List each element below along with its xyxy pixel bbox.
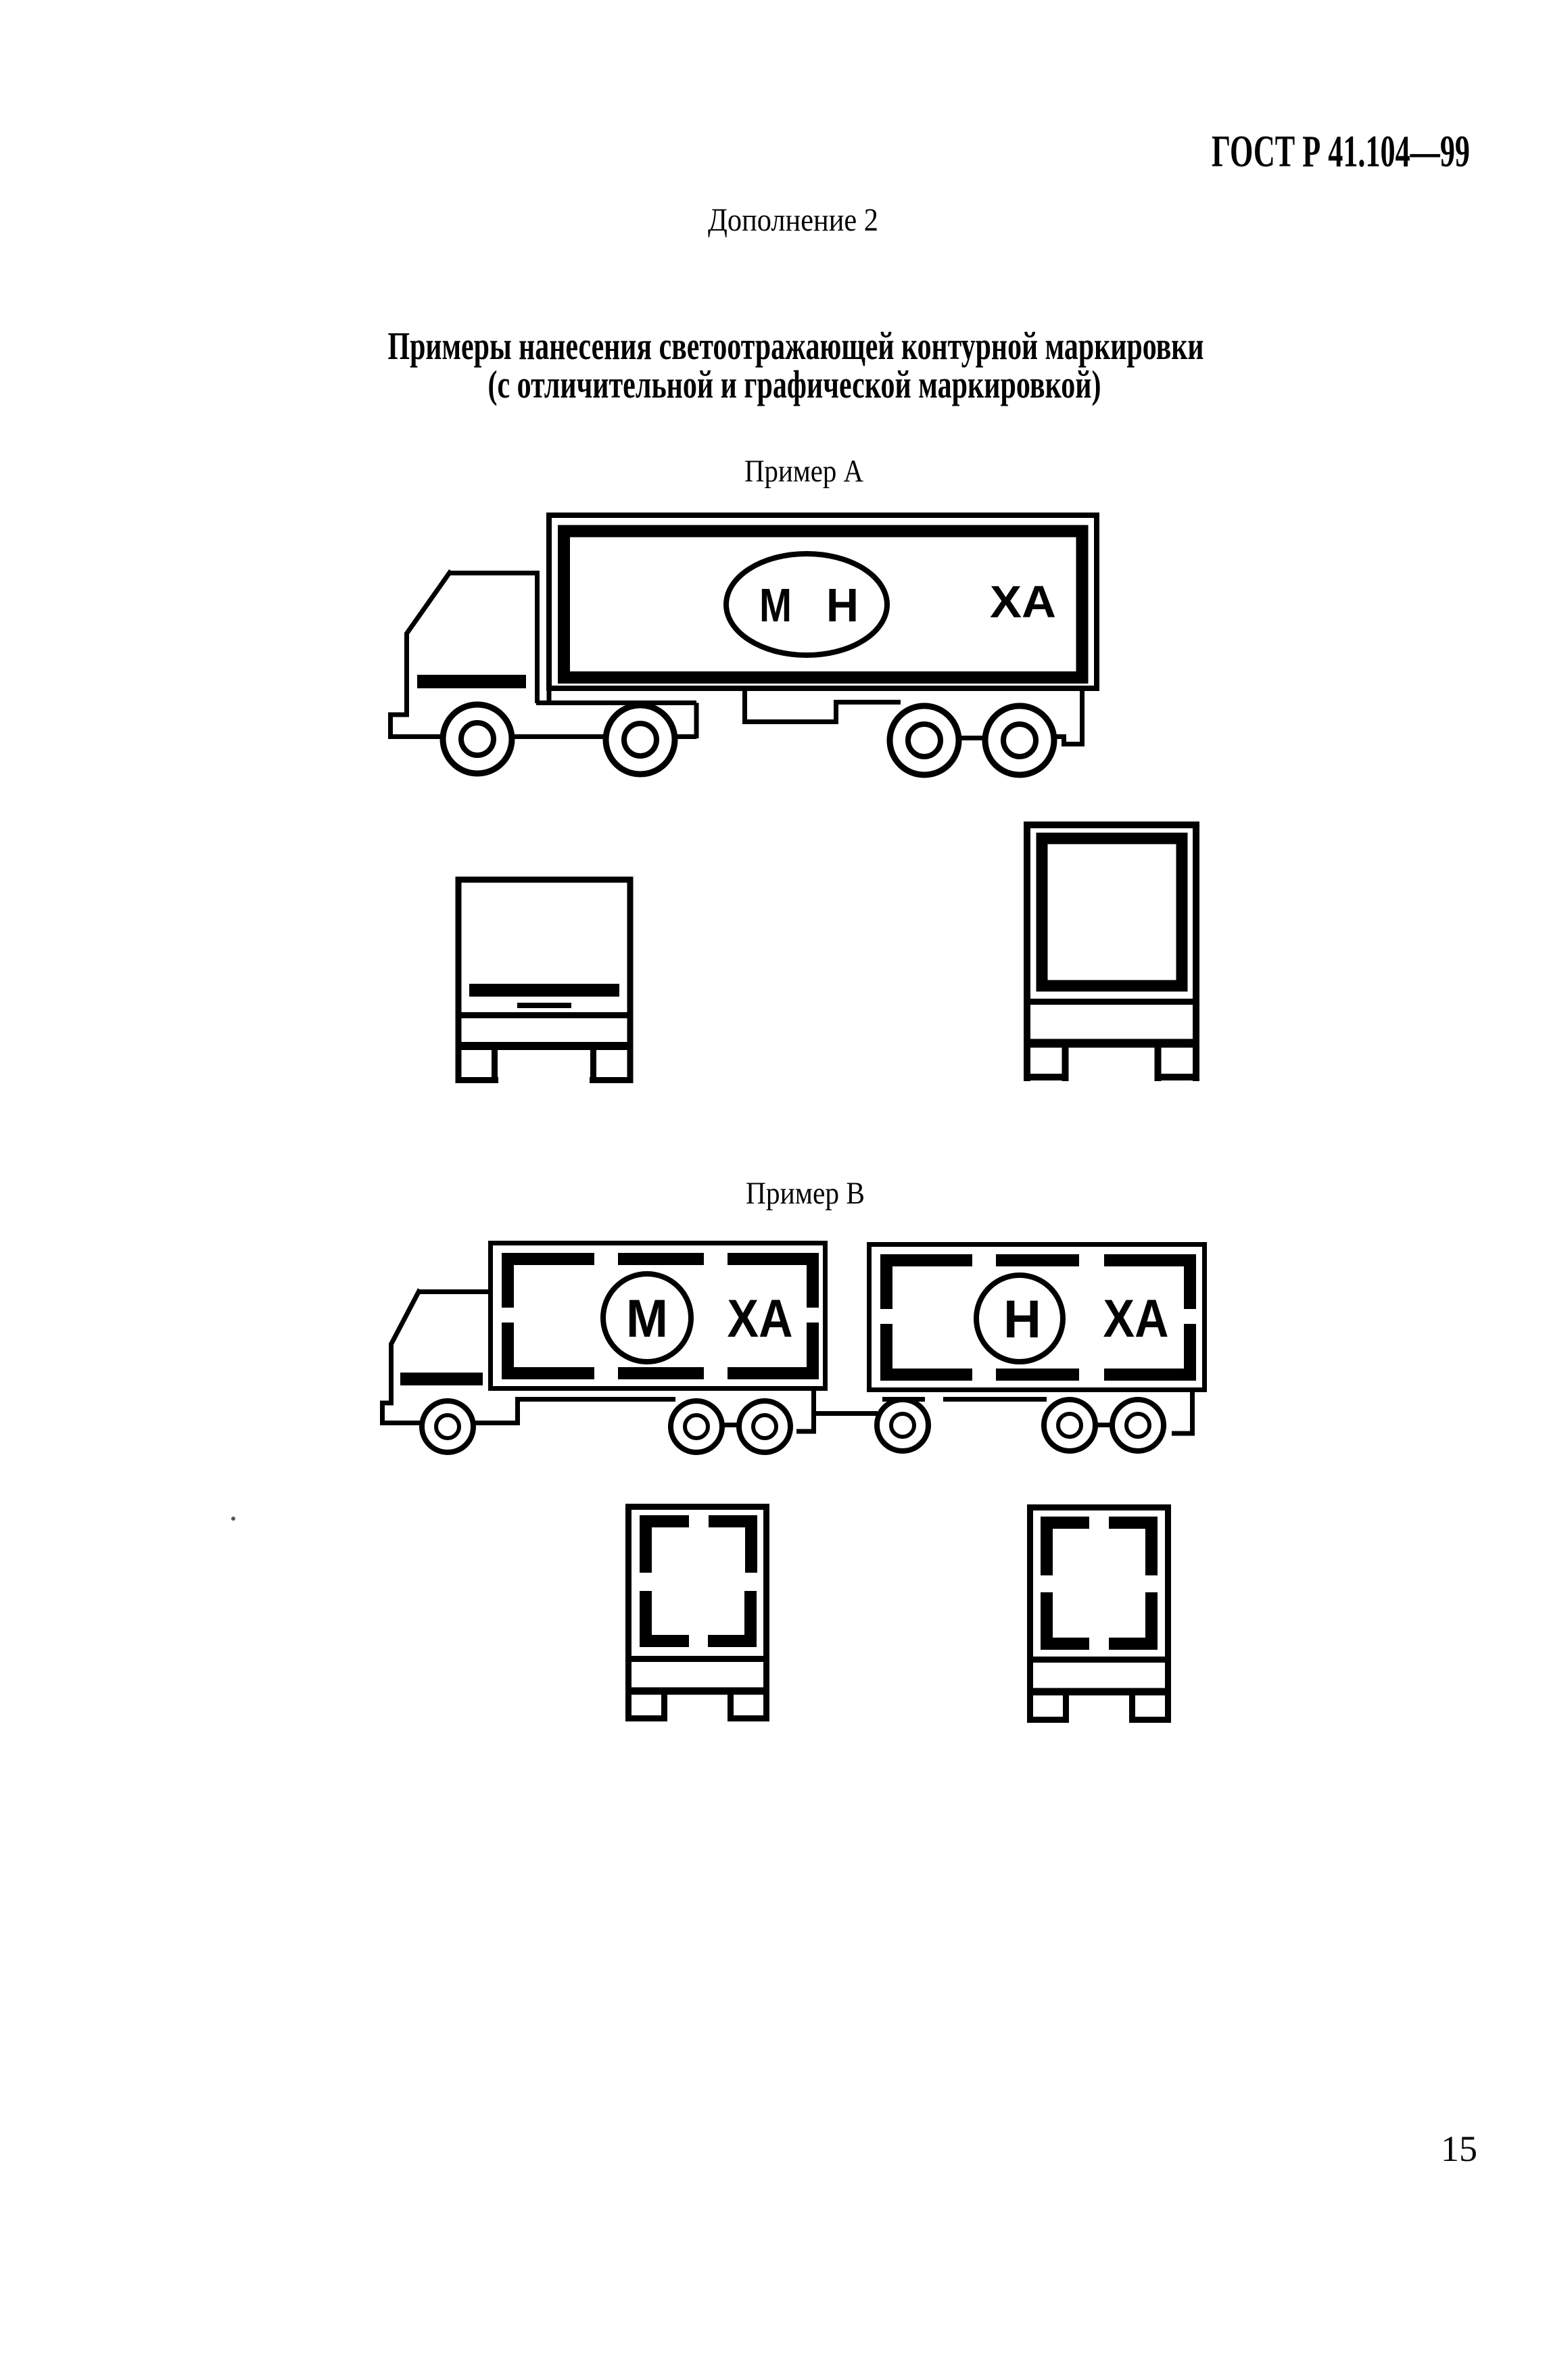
svg-text:Н: Н	[826, 579, 859, 632]
svg-text:ХА: ХА	[990, 577, 1056, 627]
svg-text:М: М	[759, 579, 792, 632]
svg-text:ХА: ХА	[728, 1288, 793, 1348]
svg-text:(с отличительной и графической: (с отличительной и графической маркировк…	[488, 362, 1101, 406]
svg-text:Пример А: Пример А	[744, 454, 863, 489]
svg-text:Н: Н	[1003, 1289, 1041, 1349]
svg-text:Пример В: Пример В	[746, 1176, 865, 1211]
svg-text:15: 15	[1441, 2128, 1477, 2169]
svg-text:Примеры нанесения светоотражаю: Примеры нанесения светоотражающей контур…	[388, 324, 1204, 368]
svg-text:ХА: ХА	[1103, 1288, 1169, 1348]
svg-text:М: М	[626, 1288, 668, 1348]
svg-text:Дополнение 2: Дополнение 2	[708, 202, 878, 238]
svg-text:ГОСТ Р 41.104—99: ГОСТ Р 41.104—99	[1212, 126, 1470, 176]
